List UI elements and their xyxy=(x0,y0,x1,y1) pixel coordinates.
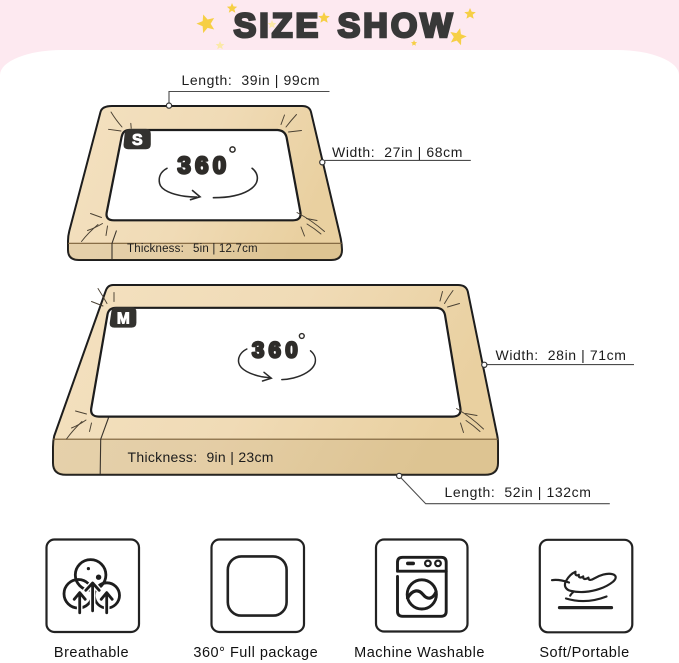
svg-text:360: 360 xyxy=(178,153,231,180)
svg-text:S: S xyxy=(132,132,143,149)
svg-text:360: 360 xyxy=(252,338,302,363)
svg-text:M: M xyxy=(117,310,130,327)
